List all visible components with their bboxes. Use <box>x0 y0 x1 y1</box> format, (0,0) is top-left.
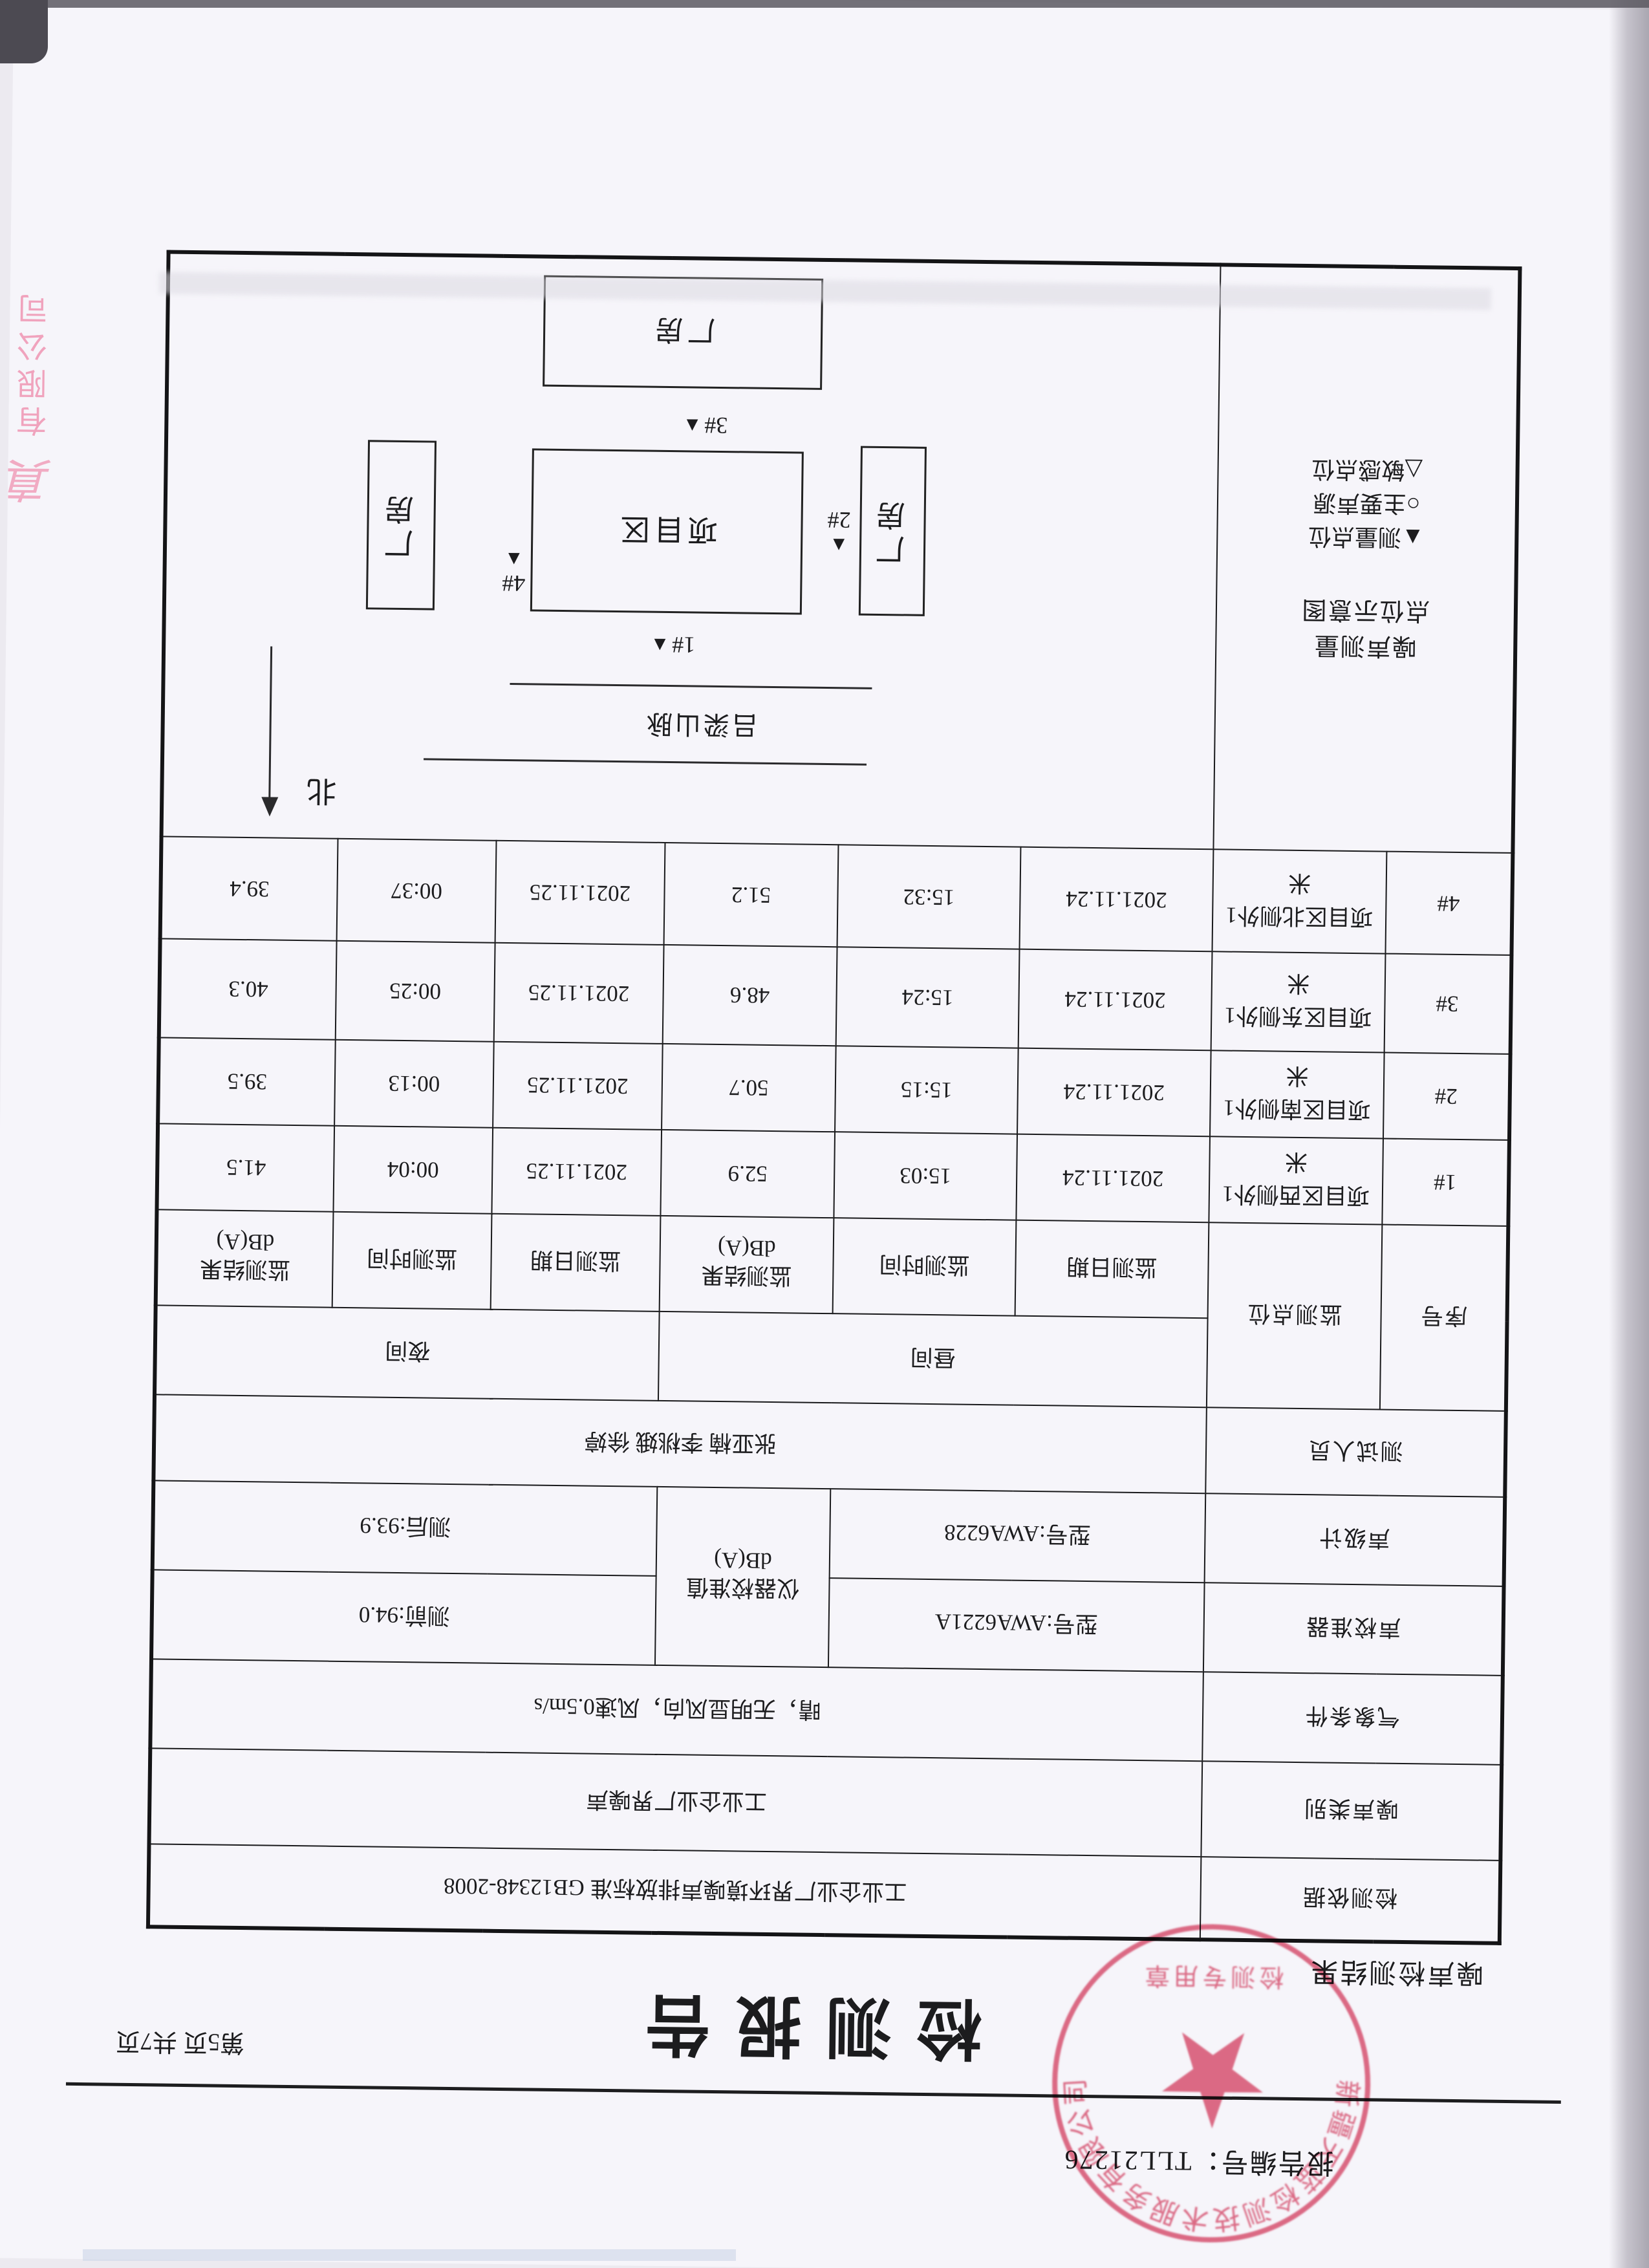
project-area-label: 项目区 <box>616 510 718 554</box>
marker-1-label: 1# <box>672 631 696 658</box>
point-marker-icon: ▲ <box>650 634 669 656</box>
noise-type-value: 工业企业厂界噪声 <box>149 1748 1202 1857</box>
table-header-row: 序号 监测点位 昼间 夜间 <box>155 1305 1507 1411</box>
table-row: 声校准器 型号:AWA6221A 仪器校准值 dB(A) 测前:94.0 <box>151 1570 1504 1676</box>
marker-1: 1# ▲ <box>650 631 695 659</box>
cell-seq: 2# <box>1383 1053 1511 1140</box>
marker-4-label: 4# <box>502 571 525 596</box>
cell-day-date: 2021.11.24 <box>1016 1134 1210 1223</box>
meter-label: 声级计 <box>1205 1493 1505 1586</box>
marker-4: 4# ▲ <box>502 546 526 596</box>
cell-day-date: 2021.11.24 <box>1017 1048 1211 1137</box>
edge-seal-fragment: 真 有限公司 <box>0 286 70 504</box>
cell-day-result: 52.9 <box>660 1130 835 1218</box>
factory-bottom-label: 厂房 <box>651 312 716 354</box>
marker-2-label: 2# <box>827 508 850 532</box>
cell-day-date: 2021.11.24 <box>1019 847 1213 952</box>
cell-night-result: 40.3 <box>159 938 337 1039</box>
site-diagram: 吕梁山脉 北 1# ▲ 厂房 <box>167 255 1216 848</box>
scan-edge-shadow-right <box>1609 0 1649 2268</box>
cell-seq: 3# <box>1385 954 1512 1054</box>
testers-value: 张亚楠 李桃娥 徐婷 <box>153 1394 1207 1493</box>
cell-night-date: 2021.11.25 <box>494 943 664 1044</box>
cell-day-result: 51.2 <box>664 843 839 947</box>
weather-label: 气象条件 <box>1202 1672 1503 1765</box>
cell-day-time: 15:03 <box>834 1132 1017 1220</box>
mountain-line-top <box>424 758 867 765</box>
diagram-row: 噪声测量 点位示意图 ▲测量点位 ○主要声源 △敏感点位 吕梁山脉 <box>161 252 1520 853</box>
factory-box-left: 厂房 <box>859 446 927 616</box>
col-day-date: 监测日期 <box>1015 1220 1209 1319</box>
cell-day-date: 2021.11.24 <box>1018 949 1212 1051</box>
scanned-page: 报告编号：TLL21276 检测报告 第5页 共7页 噪声检测结果 检测依据 工… <box>0 0 1649 2268</box>
testers-label: 测试人员 <box>1205 1407 1506 1497</box>
cell-seq: 4# <box>1385 852 1513 955</box>
diagram-label: 噪声测量 点位示意图 <box>1220 593 1510 667</box>
col-point: 监测点位 <box>1207 1222 1382 1409</box>
calibrator-label: 声校准器 <box>1203 1582 1504 1676</box>
report-sheet: 报告编号：TLL21276 检测报告 第5页 共7页 噪声检测结果 检测依据 工… <box>0 0 1649 2268</box>
north-label: 北 <box>307 772 337 815</box>
legend-sensitive-point: △敏感点位 <box>1222 451 1512 488</box>
calibrator-model: 型号:AWA6221A <box>828 1578 1205 1672</box>
cell-day-result: 50.7 <box>662 1044 836 1132</box>
meter-model: 型号:AWA6228 <box>830 1489 1206 1582</box>
data-row-2: 2# 项目区南侧外1米 2021.11.24 15:15 50.7 2021.1… <box>158 1037 1511 1140</box>
cell-day-result: 48.6 <box>663 945 837 1046</box>
cell-day-time: 15:15 <box>835 1046 1018 1134</box>
noise-report-table: 检测依据 工业企业厂界环境噪声排放标准 GB12348-2008 噪声类别 工业… <box>146 250 1522 1945</box>
col-day-result: 监测结果 dB(A) <box>660 1216 834 1313</box>
col-night-time: 监测时间 <box>332 1212 492 1310</box>
cell-night-time: 00:04 <box>333 1126 493 1214</box>
cell-night-date: 2021.11.25 <box>495 841 665 945</box>
col-night-date: 监测日期 <box>491 1214 661 1312</box>
project-area-box: 项目区 <box>530 448 804 614</box>
company-seal-stamp: 新疆天蓝检测技术服务有限公司 检测专用章 <box>1047 1919 1375 2247</box>
col-day-time: 监测时间 <box>833 1218 1017 1315</box>
scan-corner-blob <box>0 0 48 63</box>
diagram-label-cell: 噪声测量 点位示意图 ▲测量点位 ○主要声源 △敏感点位 <box>1213 265 1520 853</box>
diagram-cell: 吕梁山脉 北 1# ▲ 厂房 <box>161 252 1220 850</box>
marker-2: ▲ 2# <box>827 508 851 557</box>
diagram-legend: ▲测量点位 ○主要声源 △敏感点位 <box>1222 451 1512 555</box>
factory-box-right: 厂房 <box>366 440 436 610</box>
scan-edge-line-top <box>35 0 1649 8</box>
cell-night-time: 00:25 <box>336 941 495 1042</box>
cell-night-time: 00:13 <box>334 1040 494 1128</box>
cell-night-time: 00:37 <box>337 839 497 943</box>
page-number: 第5页 共7页 <box>115 2026 244 2063</box>
cell-night-result: 39.4 <box>160 836 338 940</box>
cell-point: 项目区北侧外1米 <box>1212 849 1386 953</box>
seal-star-icon <box>1161 2032 1264 2129</box>
calibration-value-label: 仪器校准值 dB(A) <box>655 1487 830 1667</box>
col-seq: 序号 <box>1380 1225 1508 1411</box>
cell-night-result: 39.5 <box>158 1037 336 1125</box>
mountain-label: 吕梁山脉 <box>643 707 758 746</box>
seal-type-text: 检测专用章 <box>1141 1961 1284 1991</box>
weather-value: 晴，无明显风向，风速0.5m/s <box>150 1659 1203 1761</box>
edge-seal-text: 有限公司 <box>17 287 54 438</box>
col-night-result: 监测结果 dB(A) <box>156 1209 334 1307</box>
data-row-3: 3# 项目区东侧外1米 2021.11.24 15:24 48.6 2021.1… <box>159 938 1512 1054</box>
marker-3-label: 3# <box>704 412 728 439</box>
marker-3: 3# ▲ <box>682 411 727 439</box>
basis-value: 工业企业厂界环境噪声排放标准 GB12348-2008 <box>148 1844 1202 1939</box>
data-row-1: 1# 项目区西侧外1米 2021.11.24 15:03 52.9 2021.1… <box>156 1123 1509 1226</box>
cell-point: 项目区南侧外1米 <box>1210 1050 1385 1138</box>
table-row: 测试人员 张亚楠 李桃娥 徐婷 <box>153 1394 1506 1497</box>
factory-right-label: 厂房 <box>380 491 423 559</box>
cell-night-date: 2021.11.25 <box>493 1042 663 1130</box>
point-marker-icon: ▲ <box>682 414 702 436</box>
factory-left-label: 厂房 <box>871 497 914 565</box>
cell-seq: 1# <box>1382 1139 1509 1226</box>
legend-measure-point: ▲测量点位 <box>1222 518 1511 555</box>
north-arrow-icon <box>261 797 278 816</box>
cell-day-time: 15:24 <box>836 947 1020 1048</box>
scan-edge-strip-bottom <box>83 2249 736 2261</box>
calibration-after: 测后:93.9 <box>153 1480 658 1576</box>
col-day: 昼间 <box>658 1312 1208 1407</box>
col-night: 夜间 <box>155 1305 660 1401</box>
cell-day-time: 15:32 <box>837 845 1021 949</box>
data-row-4: 4# 项目区北侧外1米 2021.11.24 15:32 51.2 2021.1… <box>160 836 1513 955</box>
north-arrow-shaft <box>268 646 272 798</box>
calibration-before: 测前:94.0 <box>151 1570 656 1665</box>
table-row: 噪声类别 工业企业厂界噪声 <box>149 1748 1502 1861</box>
legend-main-source: ○主要声源 <box>1222 484 1512 521</box>
noise-type-label: 噪声类别 <box>1201 1761 1502 1861</box>
cell-point: 项目区东侧外1米 <box>1211 951 1386 1052</box>
mountain-line-bottom <box>510 683 872 689</box>
rotated-scan-wrapper: 报告编号：TLL21276 检测报告 第5页 共7页 噪声检测结果 检测依据 工… <box>0 0 1649 2268</box>
point-marker-icon: ▲ <box>829 532 848 557</box>
cell-night-result: 41.5 <box>156 1123 334 1211</box>
point-marker-icon: ▲ <box>504 546 524 571</box>
cell-night-date: 2021.11.25 <box>491 1128 662 1216</box>
table-row: 气象条件 晴，无明显风向，风速0.5m/s <box>150 1659 1503 1765</box>
edge-seal-mark: 真 <box>8 451 61 505</box>
cell-point: 项目区西侧外1米 <box>1209 1136 1383 1224</box>
